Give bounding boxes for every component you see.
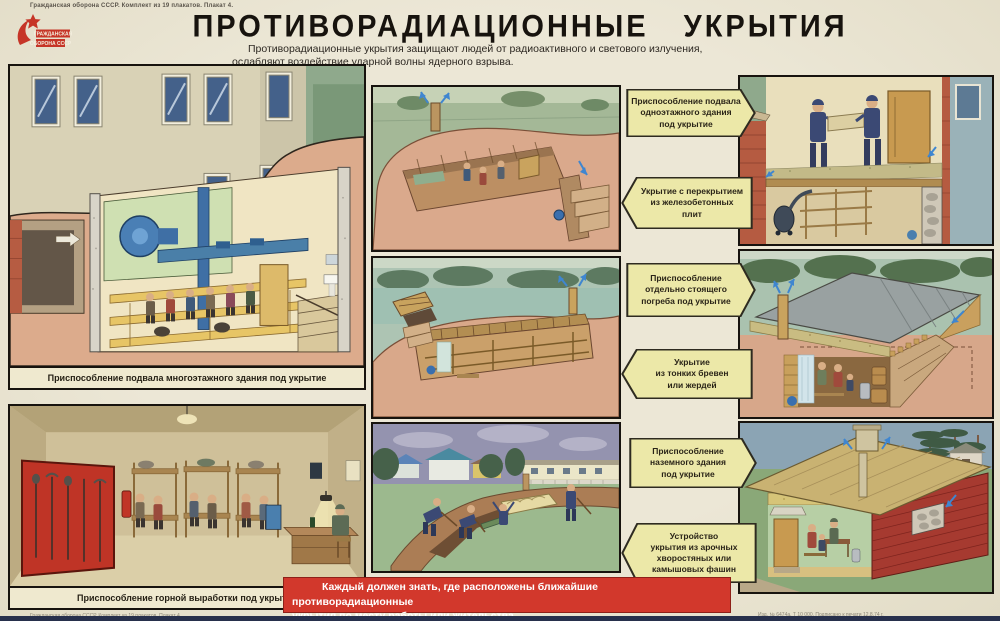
bucket <box>554 210 564 220</box>
basement-multistory-illustration <box>10 66 364 366</box>
tool-board <box>22 461 114 576</box>
concrete-slab-shelter-illustration <box>373 87 619 250</box>
civil-defense-emblem-icon: ГРАЖДАНСКАЯ ОБОРОНА СССР <box>12 13 72 55</box>
panel-above-ground-house <box>738 421 994 594</box>
poster-bottom-edge <box>0 616 1000 621</box>
callout-text: Устройство укрытия из арочных хворостяны… <box>621 523 757 583</box>
emblem-text-1: ГРАЖДАНСКАЯ <box>34 32 72 38</box>
bucket <box>787 396 797 406</box>
callout-basement-single-storey: Приспособление подвала одноэтажного здан… <box>626 89 756 137</box>
cabinet <box>519 155 539 179</box>
panel-cellar-shelter <box>738 249 994 419</box>
emblem-star <box>25 14 40 29</box>
callout-above-ground-house: Приспособление наземного здания под укры… <box>629 438 757 488</box>
callout-text: Приспособление подвала одноэтажного здан… <box>626 89 756 137</box>
bucket <box>427 366 436 375</box>
callout-concrete-slab-shelter: Укрытие с перекрытием из железобетонных … <box>621 177 753 229</box>
vent-duct <box>859 453 867 497</box>
callout-text: Приспособление отдельно стоящего погреба… <box>626 263 756 317</box>
concrete-pillar <box>90 194 100 352</box>
panel-log-shelter <box>371 256 621 419</box>
panel-trench-fascine-shelter <box>371 422 621 573</box>
cellar-shelter-illustration <box>740 251 992 417</box>
emblem-text-2: ОБОРОНА СССР <box>30 41 72 47</box>
garage-entrance <box>10 220 84 313</box>
basement-door <box>260 265 288 326</box>
above-ground-house-illustration <box>740 423 992 592</box>
roof-vent-box <box>856 427 878 451</box>
callout-fascine-shelter: Устройство укрытия из арочных хворостяны… <box>621 523 757 583</box>
caption-basement-multistory: Приспособление подвала многоэтажного зда… <box>10 366 364 388</box>
callout-log-shelter: Укрытие из тонких бревен или жердей <box>621 349 753 399</box>
civil-defense-poster: Гражданская оборона СССР. Комплект из 19… <box>0 0 1000 621</box>
vent-pipe <box>523 474 529 490</box>
fire-extinguisher <box>122 491 131 517</box>
panel-basement-single-storey <box>738 75 994 246</box>
callout-text: Укрытие из тонких бревен или жердей <box>621 349 753 399</box>
curtain <box>437 342 451 372</box>
room-door <box>888 91 930 163</box>
poster-title: ПРОТИВОРАДИАЦИОННЫЕ УКРЫТИЯ <box>185 9 855 45</box>
callout-text: Укрытие с перекрытием из железобетонных … <box>621 177 753 229</box>
bucket <box>907 230 917 240</box>
basement-single-storey-illustration <box>740 77 992 244</box>
callout-cellar-shelter: Приспособление отдельно стоящего погреба… <box>626 263 756 317</box>
panel-concrete-slab-shelter <box>371 85 621 252</box>
subtitle-line-1: Противорадиационные укрытия защищают люд… <box>232 43 817 56</box>
trench-fascine-illustration <box>373 424 619 571</box>
bench <box>457 374 479 378</box>
basement-stairs <box>296 295 338 352</box>
curtain <box>798 355 814 403</box>
log-shelter-illustration <box>373 258 619 417</box>
slogan-banner: Каждый должен знать, где расположены бли… <box>283 577 731 613</box>
window <box>956 85 980 119</box>
mine-gallery-illustration <box>10 406 364 586</box>
panel-basement-multistory: Приспособление подвала многоэтажного зда… <box>8 64 366 390</box>
banner-line-1: Каждый должен знать, где расположены бли… <box>292 580 722 609</box>
callout-text: Приспособление наземного здания под укры… <box>629 438 757 488</box>
